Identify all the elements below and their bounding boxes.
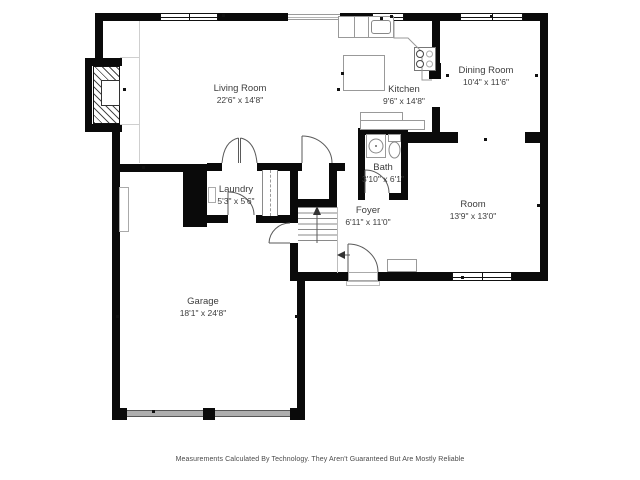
window [160,13,218,21]
dimension-marker [142,166,145,169]
wall [256,215,298,223]
kitchen-counter [360,120,425,130]
wall [432,107,440,132]
bath-label: Bath 3'10" x 6'1" [362,162,404,185]
room-dimensions: 13'9" x 13'0" [450,211,497,222]
porch-step [346,281,380,286]
wall [540,13,548,281]
wall [405,132,458,143]
bath-vanity [366,134,386,158]
garage-label: Garage 18'1" x 24'8" [180,296,227,319]
stove [414,47,436,71]
wall [85,58,92,132]
wall [112,164,183,172]
staircase [298,207,337,241]
room-dimensions: 10'4" x 11'6" [459,77,514,88]
dimension-marker [295,315,298,318]
dimension-marker [446,74,449,77]
wall [358,193,365,200]
dining-room-label: Dining Room 10'4" x 11'6" [459,65,514,88]
wall [389,193,408,200]
wall [297,273,305,413]
laundry-label: Laundry 5'3" x 5'6" [217,184,254,207]
door-swing-arc [269,223,290,243]
dimension-marker [123,88,126,91]
wall [207,163,222,171]
wall [290,243,298,281]
laundry-nook [208,187,216,203]
floor-line [120,124,139,125]
door-swing-arc [348,244,378,272]
stair-edge-line [337,207,338,273]
room-name: Living Room [214,83,267,95]
garage-door [127,410,203,417]
room-name: Kitchen [383,84,425,96]
floor-plan: Living Room 22'6" x 14'8" Kitchen 9'6" x… [0,0,640,480]
room-name: Dining Room [459,65,514,77]
dimension-marker [461,276,464,279]
foyer-label: Foyer 6'11" x 11'0" [345,205,390,228]
dimension-marker [535,74,538,77]
window-mullion [189,14,190,20]
kitchen-sink-basin [371,20,391,34]
room-name: Bath [362,162,404,174]
disclaimer-text: Measurements Calculated By Technology. T… [0,456,640,463]
dimension-marker [341,72,344,75]
toilet-tank [388,134,401,142]
wall [183,215,228,223]
dimension-marker [337,88,340,91]
wall-opening-line [288,17,340,18]
room-dimensions: 18'1" x 24'8" [180,308,227,319]
hall-arrowhead [337,251,345,259]
faucet-dot [380,17,383,20]
dimension-marker [390,15,393,18]
wall [112,408,127,420]
wall [378,272,452,281]
dimension-marker [152,410,155,413]
room-dimensions: 22'6" x 14'8" [214,95,267,106]
kitchen-label: Kitchen 9'6" x 14'8" [383,84,425,107]
wall [512,272,548,281]
room-name: Foyer [345,205,390,217]
door-swing-arc [302,136,332,163]
wall [95,13,162,21]
wall [297,272,348,281]
room-dimensions: 6'11" x 11'0" [345,217,390,228]
door-swing-arc [241,138,258,163]
room-name: Garage [180,296,227,308]
room-name: Room [450,199,497,211]
front-door-threshold [348,272,378,281]
dimension-marker [116,315,119,318]
cabinet-divider [354,16,355,38]
wall [290,163,298,223]
room-label: Room 13'9" x 13'0" [450,199,497,222]
door-swing-arc [222,138,239,163]
dimension-marker [490,15,493,18]
window-mullion [482,273,483,280]
floor-line [139,21,140,163]
room-dimensions: 3'10" x 6'1" [362,174,404,185]
room-dimensions: 9'6" x 14'8" [383,96,425,107]
kitchen-island [343,55,385,91]
room-name: Laundry [217,184,254,196]
room-dimensions: 5'3" x 5'6" [217,196,254,207]
firebox [101,80,120,106]
garage-door [215,410,290,417]
living-room-label: Living Room 22'6" x 14'8" [214,83,267,106]
closet-door-track [270,170,271,216]
wall [203,408,215,420]
utility-closet [262,170,278,216]
wall [218,13,288,21]
floor-line [120,57,139,58]
dimension-marker [222,14,225,17]
foyer-bench [387,259,417,272]
toilet [389,142,400,158]
wall-opening [288,14,340,20]
dimension-marker [484,138,487,141]
wall [525,132,548,143]
garage-utility [119,187,129,232]
dimension-marker [537,204,540,207]
